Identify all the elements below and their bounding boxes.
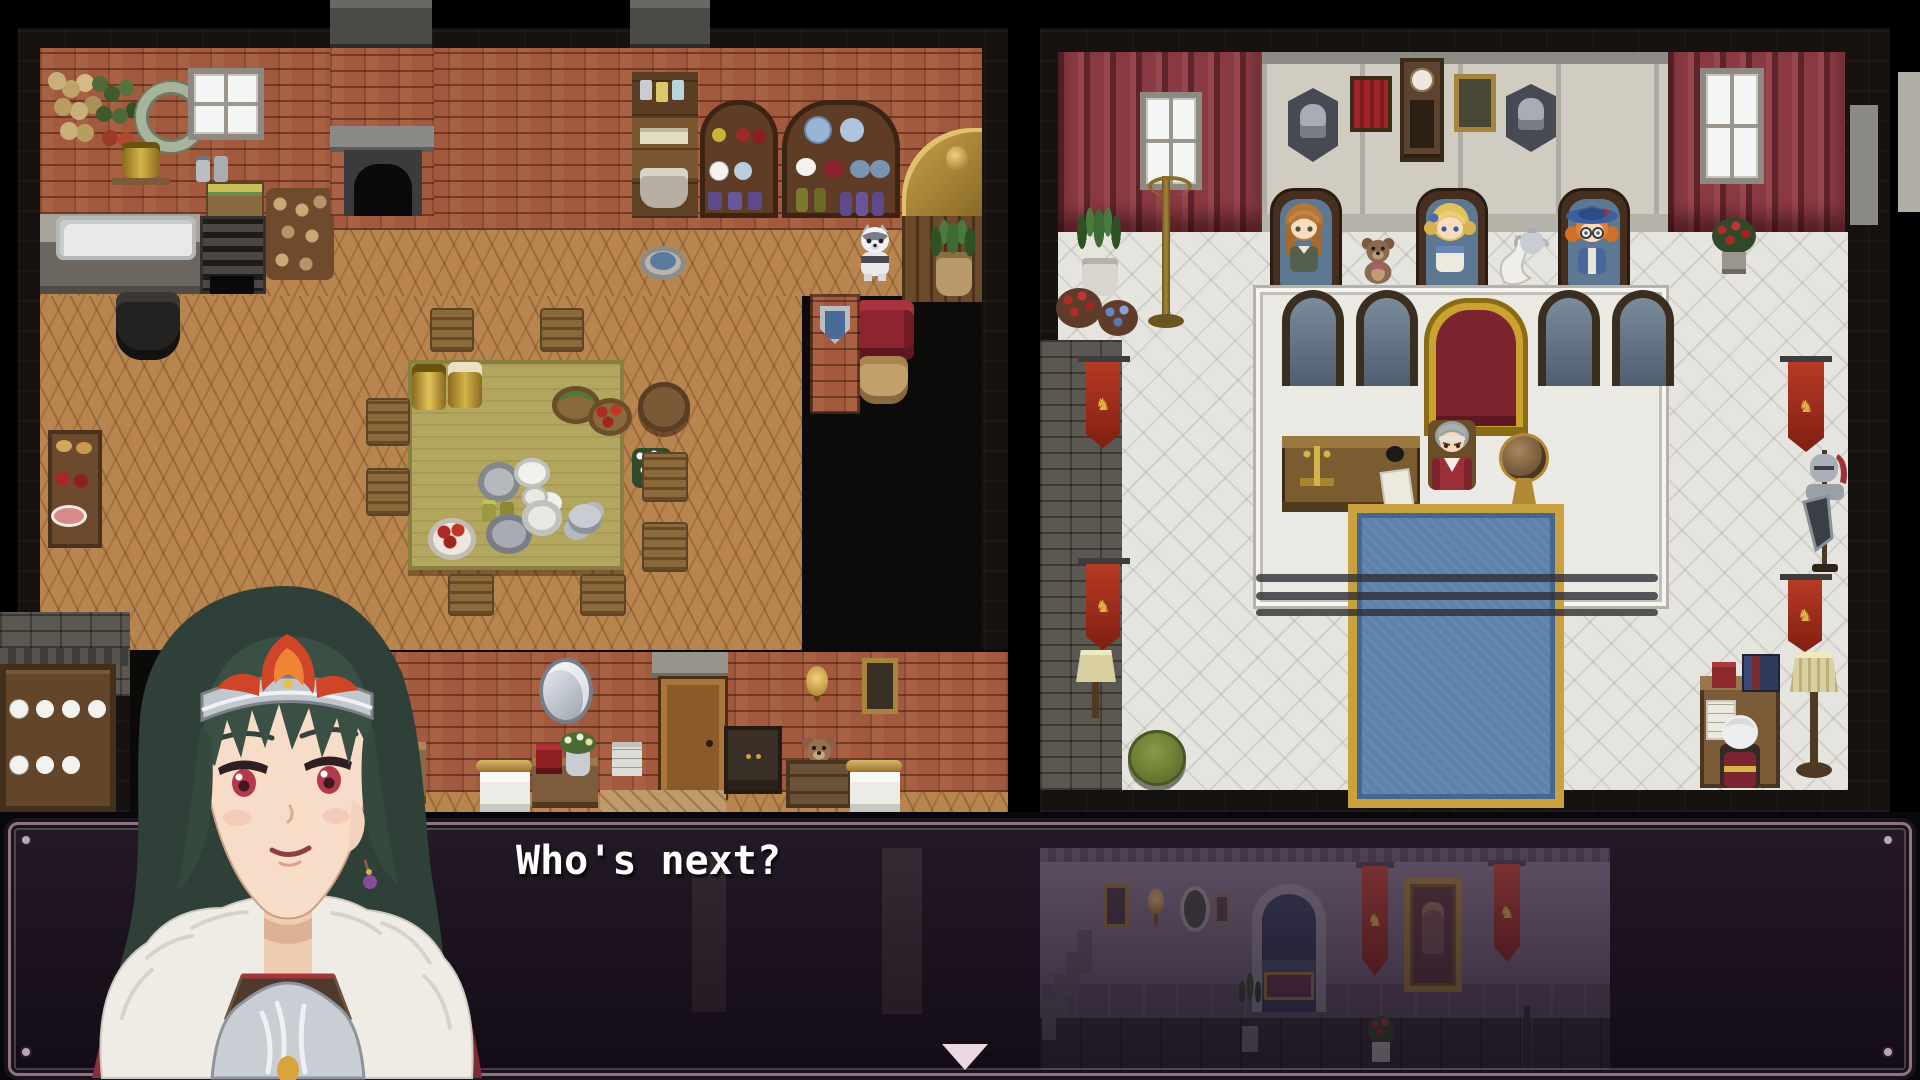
banner-emblem-icon: ♞ [1095, 597, 1110, 617]
tomato-bowl [428, 518, 476, 560]
throne-velvet [1436, 310, 1516, 426]
grain-sack [858, 356, 908, 404]
chair [430, 308, 474, 352]
wall-banner: ♞ [1788, 362, 1824, 452]
chair [642, 452, 688, 502]
chair [366, 398, 410, 446]
banner-pole [1078, 356, 1130, 362]
alcove-jars [708, 192, 722, 210]
red-box [536, 744, 562, 774]
flower-pot-blue [1098, 300, 1138, 336]
plate-stack [514, 458, 550, 488]
chimney [630, 0, 710, 50]
oval-mirror [543, 662, 589, 720]
platform-step [1256, 609, 1658, 616]
wall-banner: ♞ [1788, 580, 1822, 652]
banner-pole [1078, 558, 1130, 564]
wall-banner: ♞ [1086, 564, 1120, 650]
globe-sphere [1502, 436, 1546, 480]
platform-step [1256, 574, 1658, 582]
clock-face [1410, 68, 1434, 92]
firewood-pile [266, 188, 334, 280]
arched-panel-glass [1620, 298, 1666, 386]
hanging-herbs [92, 76, 108, 92]
teapot-display [1496, 222, 1552, 288]
alcove-dishes [796, 158, 816, 176]
bedroom-door[interactable] [658, 676, 728, 800]
banner-pole [1780, 356, 1832, 362]
white-bowl [522, 500, 562, 536]
courtroom-window [1700, 68, 1764, 184]
round-stool [638, 382, 690, 432]
alcove-bottles [796, 188, 808, 212]
plant-leaves [924, 208, 982, 260]
alcove-blue-plates [806, 118, 830, 142]
desk-book-red [1712, 662, 1736, 688]
teddy-bear [1356, 232, 1400, 288]
jars [196, 156, 210, 182]
chair [366, 468, 410, 516]
window-corner-screw [22, 1048, 30, 1056]
sink [56, 216, 196, 260]
candelabra [1300, 446, 1334, 486]
dialogue-text: Who's next? [516, 838, 781, 884]
floor-lamp-shade [1076, 650, 1116, 682]
white-dog[interactable] [852, 224, 898, 282]
dresser [786, 760, 852, 808]
pet-bowl-water [650, 252, 676, 270]
floor-lamp-pole [1810, 692, 1818, 764]
cabinet-knobs [746, 754, 751, 759]
hutch-plates [10, 756, 28, 774]
helmet-icon [1518, 98, 1544, 130]
npc-seated-girl-blonde[interactable] [1424, 198, 1476, 282]
hanging-onions [48, 72, 66, 90]
basket-tomatoes [588, 398, 632, 436]
banner-emblem-icon: ♞ [1797, 606, 1812, 626]
floor-lamp-base [1796, 762, 1832, 778]
kitchen-window [188, 68, 264, 140]
brass-cookpot-soup [448, 362, 482, 408]
coat-stand-hooks [1148, 176, 1192, 196]
flower-pot-red [1056, 288, 1102, 328]
chair [580, 574, 626, 616]
armor-display [1794, 446, 1854, 576]
banner-emblem-icon: ♞ [1798, 397, 1813, 417]
exterior-column [1850, 105, 1878, 225]
arched-panel-glass [1290, 298, 1336, 386]
cupboard-jars [640, 80, 652, 100]
chair [540, 308, 584, 352]
brass-pot [122, 142, 160, 178]
arched-panel-glass [1364, 298, 1410, 386]
alcove-fruit [712, 128, 726, 142]
wall-sconce [806, 666, 828, 696]
speaker-portrait [52, 578, 522, 1080]
banner-emblem-icon: ♞ [1095, 395, 1110, 415]
green-ottoman [1128, 730, 1186, 786]
red-couch [856, 300, 914, 360]
red-flower-arrangement [1712, 218, 1756, 254]
food-shelf-meat [54, 508, 84, 524]
hutch-plates [10, 700, 28, 718]
brass-cookpot [412, 364, 446, 410]
npc-scholar-back-view[interactable] [1712, 708, 1768, 800]
doorstep [600, 790, 726, 812]
npc-seated-girl-witch-hat[interactable] [1564, 194, 1620, 282]
exterior-column [1898, 72, 1920, 212]
iron-pot [116, 292, 180, 360]
window-corner-screw [22, 836, 30, 844]
bed [850, 772, 900, 812]
game-viewport[interactable]: ♞ ♞ [0, 0, 1920, 1080]
chimney [330, 0, 432, 50]
door-lintel [652, 652, 728, 678]
clock-pendulum-window [1410, 100, 1434, 148]
blue-carpet [1348, 504, 1564, 808]
dark-cabinet [724, 726, 782, 794]
window-corner-screw [1884, 836, 1892, 844]
flower-pedestal [1722, 252, 1746, 274]
bed-headboard [846, 760, 902, 772]
floor-lamp-pole [1092, 682, 1099, 718]
platform-step [1256, 592, 1658, 600]
fireplace-opening [354, 164, 412, 216]
chair [642, 522, 688, 572]
food-shelf-fruit [56, 472, 70, 486]
arched-panel-glass [1546, 298, 1592, 386]
door-knob [706, 740, 713, 747]
teapot [568, 504, 602, 534]
wall-shelf [112, 178, 170, 185]
coat-stand-base [1148, 314, 1184, 328]
framed-painting [862, 658, 898, 714]
red-book-shelf [1350, 76, 1392, 132]
alcove-plates [710, 162, 728, 180]
cupboard-basket [640, 168, 688, 208]
stove-opening [210, 276, 254, 294]
wall-banner: ♞ [1086, 362, 1120, 448]
window-corner-screw [1884, 1048, 1892, 1056]
framed-picture [1454, 74, 1496, 132]
inkwell [1386, 446, 1404, 462]
coat-stand [1162, 176, 1170, 320]
npc-judge[interactable] [1424, 414, 1480, 504]
vase-flowers [560, 732, 596, 754]
cupboard-linens [640, 128, 688, 144]
fireplace-mantel [330, 126, 434, 152]
floor-lamp-shade [1790, 652, 1838, 692]
food-shelf-bread [56, 440, 72, 452]
banner-pole [1780, 574, 1832, 580]
npc-seated-woman-orange-hair[interactable] [1278, 198, 1330, 282]
bar-ornament [946, 146, 968, 172]
helmet-icon [1300, 104, 1326, 138]
wall-note [612, 742, 642, 776]
desk-books [1742, 654, 1780, 692]
potted-plant-leaves [1068, 192, 1130, 262]
